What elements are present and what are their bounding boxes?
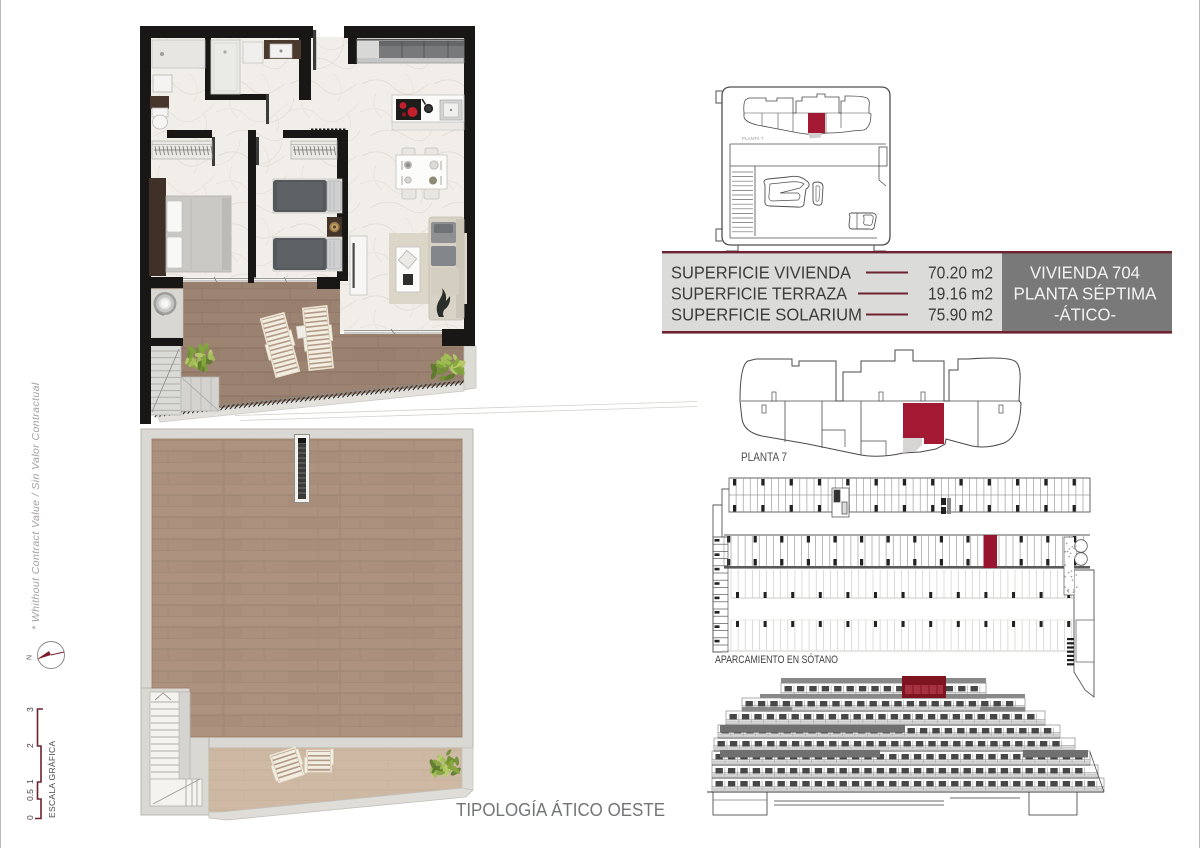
svg-text:PLANTA 7: PLANTA 7 <box>741 452 787 464</box>
svg-text:0.5: 0.5 <box>25 789 35 801</box>
svg-text:70.20 m2: 70.20 m2 <box>928 263 993 283</box>
svg-text:SUPERFICIE VIVIENDA: SUPERFICIE VIVIENDA <box>671 263 851 283</box>
svg-text:3: 3 <box>25 707 35 712</box>
svg-text:* Whithout Contract Value / Si: * Whithout Contract Value / Sin Valor Co… <box>30 382 42 630</box>
svg-text:SUPERFICIE TERRAZA: SUPERFICIE TERRAZA <box>671 284 847 304</box>
svg-text:N: N <box>27 655 34 660</box>
svg-text:ESCALA GRÁFICA: ESCALA GRÁFICA <box>47 741 57 818</box>
svg-text:APARCAMIENTO EN SÓTANO: APARCAMIENTO EN SÓTANO <box>715 653 838 666</box>
svg-text:PLANTA 7: PLANTA 7 <box>742 136 764 141</box>
svg-text:TIPOLOGÍA ÁTICO OESTE: TIPOLOGÍA ÁTICO OESTE <box>456 800 665 820</box>
svg-text:0: 0 <box>25 815 35 820</box>
svg-text:SUPERFICIE SOLARIUM: SUPERFICIE SOLARIUM <box>671 305 862 325</box>
svg-text:19.16 m2: 19.16 m2 <box>928 284 993 304</box>
svg-text:2: 2 <box>25 743 35 748</box>
svg-text:PLANTA SÉPTIMA: PLANTA SÉPTIMA <box>1014 284 1157 304</box>
svg-text:1: 1 <box>25 779 35 784</box>
svg-text:VIVIENDA 704: VIVIENDA 704 <box>1030 263 1140 283</box>
svg-text:-ÁTICO-: -ÁTICO- <box>1054 305 1116 325</box>
svg-text:75.90 m2: 75.90 m2 <box>928 305 993 325</box>
